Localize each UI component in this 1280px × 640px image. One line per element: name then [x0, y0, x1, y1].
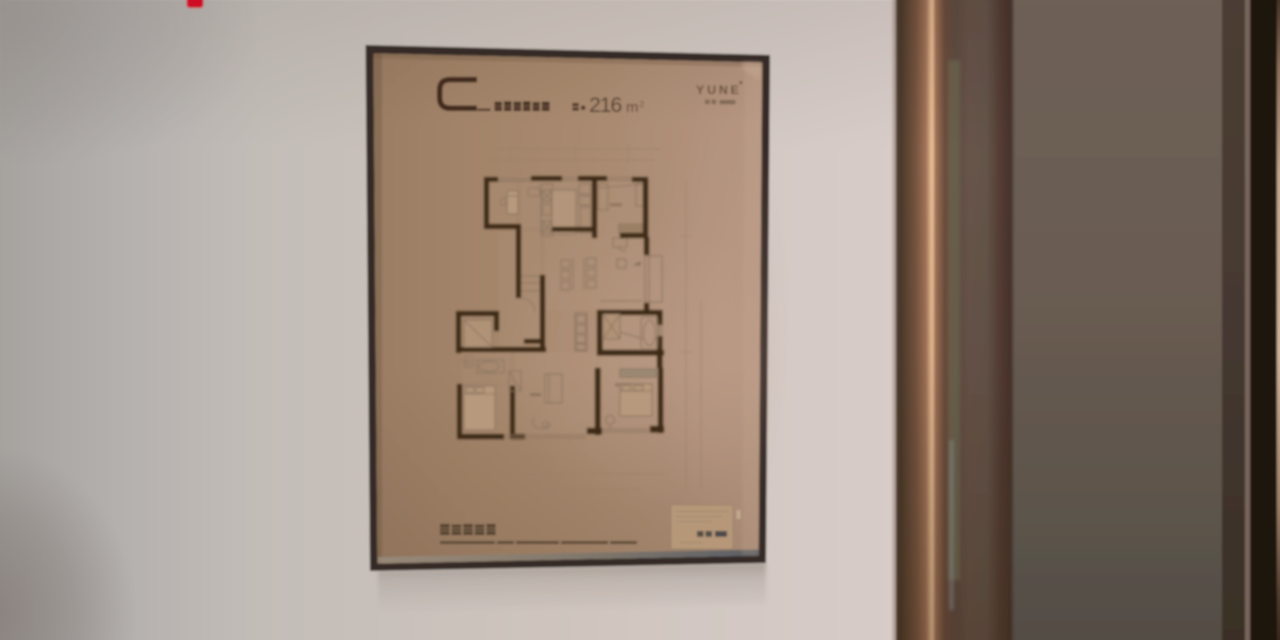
svg-text:YUNE: YUNE	[696, 83, 742, 97]
svg-text:2: 2	[640, 99, 645, 109]
svg-text:m: m	[626, 99, 639, 116]
svg-text:216: 216	[589, 93, 622, 117]
